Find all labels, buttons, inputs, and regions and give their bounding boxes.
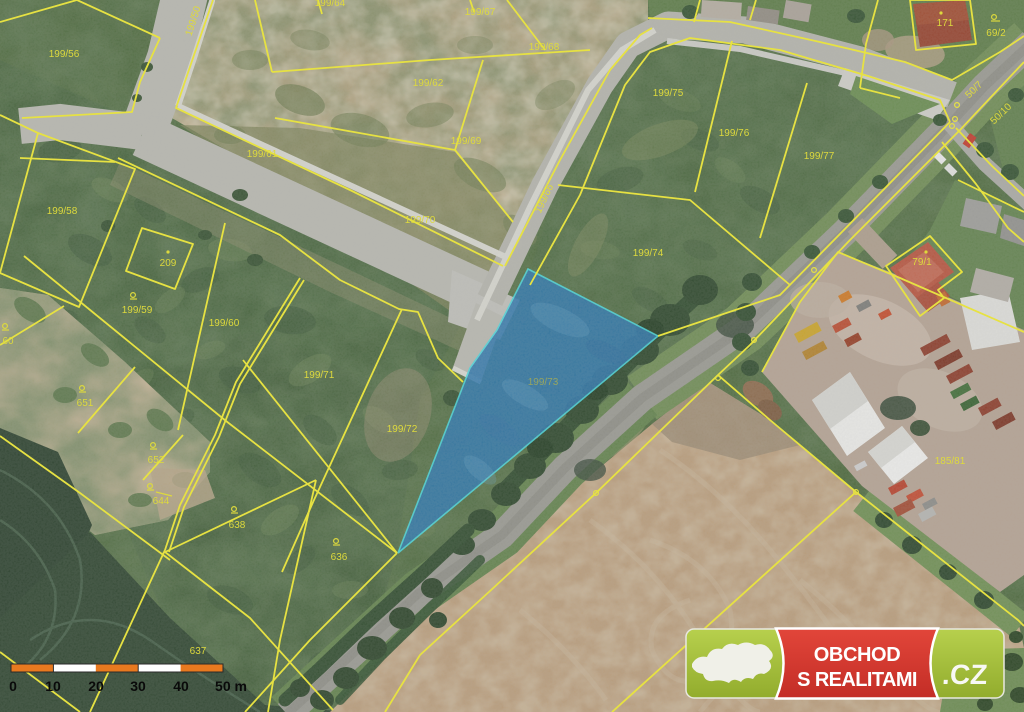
svg-text:0: 0 bbox=[9, 678, 17, 694]
svg-text:20: 20 bbox=[88, 678, 104, 694]
svg-text:30: 30 bbox=[130, 678, 146, 694]
svg-text:S REALITAMI: S REALITAMI bbox=[797, 669, 917, 691]
svg-text:.CZ: .CZ bbox=[941, 659, 988, 690]
svg-text:50 m: 50 m bbox=[215, 678, 247, 694]
svg-text:40: 40 bbox=[173, 678, 189, 694]
svg-text:10: 10 bbox=[45, 678, 61, 694]
svg-text:OBCHOD: OBCHOD bbox=[814, 644, 901, 666]
